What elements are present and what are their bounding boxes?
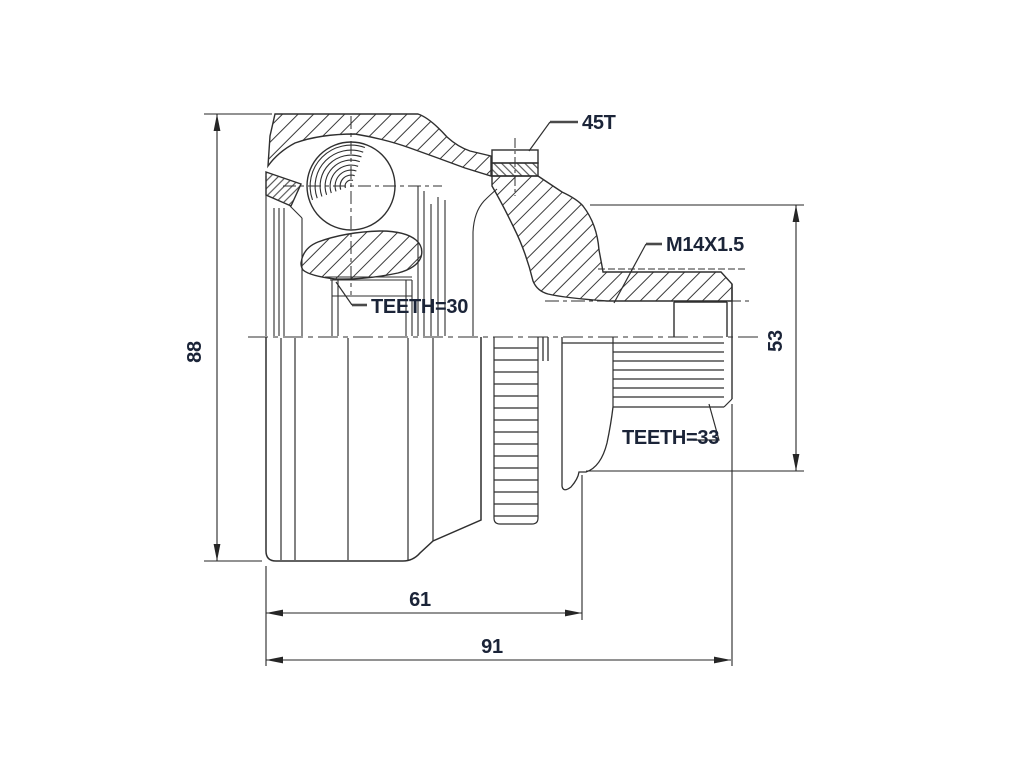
- outer-spline-teeth-label: TEETH=33: [622, 427, 719, 449]
- exterior-view-bottom-half: [266, 337, 732, 561]
- bell-housing-band-lines: [281, 338, 433, 560]
- dim-91-label: 91: [481, 636, 503, 658]
- dim-53-label: 53: [765, 330, 787, 352]
- stub-shaft-spline: [562, 337, 732, 407]
- centerlines: [248, 116, 758, 337]
- dim-88-label: 88: [184, 341, 206, 363]
- drawing-canvas: 45T M14X1.5 TEETH=30 TEETH=33 61 91 88 5…: [0, 0, 1024, 768]
- boot-seat-neck: [543, 337, 613, 490]
- inner-race-section: [301, 231, 422, 279]
- abs-ring-exterior: [494, 337, 538, 524]
- inner-spline-teeth-label: TEETH=30: [371, 296, 468, 318]
- cv-joint-technical-drawing: 45T M14X1.5 TEETH=30 TEETH=33 61 91 88 5…: [0, 0, 1024, 768]
- section-view-top-half: [266, 114, 732, 399]
- abs-ring-teeth-label: 45T: [582, 112, 616, 134]
- bell-housing-outline: [266, 337, 481, 561]
- cage-section-left: [266, 172, 301, 206]
- thread-spec-label: M14X1.5: [666, 234, 744, 256]
- dim-61-label: 61: [409, 589, 431, 611]
